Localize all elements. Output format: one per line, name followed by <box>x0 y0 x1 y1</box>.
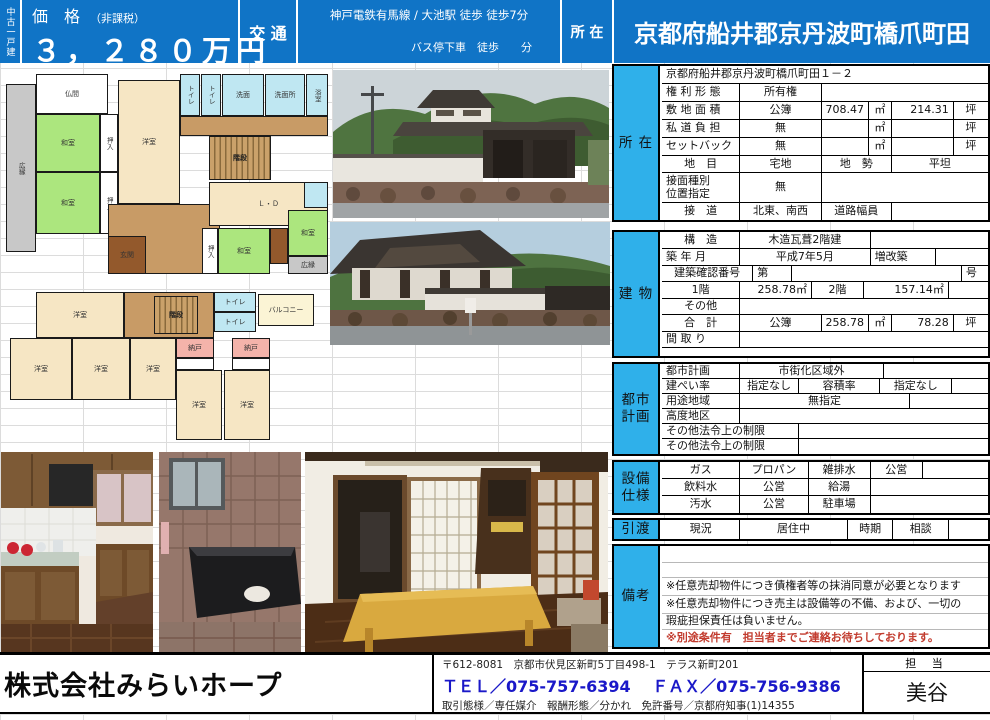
room-浴室: 浴室 <box>306 74 328 116</box>
tatemono-cell-1-3 <box>936 249 988 265</box>
tatemono-row-1: 築 年 月平成7年5月増改築 <box>662 249 988 266</box>
section-label-tatemono: 建 物 <box>614 232 660 356</box>
tatemono-cell-0-1: 木造瓦葺2階建 <box>740 232 870 248</box>
shozai-cell-3-0: 私 道 負 担 <box>662 120 740 137</box>
room-仏間: 仏間 <box>36 74 108 114</box>
hikiwatashi-cell-0-2: 時期 <box>848 520 894 539</box>
room-closet <box>232 358 270 370</box>
section-setsubi: 設備仕様ガスプロパン雑排水公営飲料水公営給湯汚水公営駐車場 <box>612 460 990 515</box>
room-和室: 和室 <box>288 210 328 256</box>
shozai-cell-3-1: 無 <box>740 120 822 137</box>
tatemono-cell-5-1: 公簿 <box>740 315 822 331</box>
setsubi-cell-0-1: プロパン <box>740 462 808 478</box>
transport-line1: 神戸電鉄有馬線 / 大池駅 徒歩 徒歩7分 <box>298 7 560 23</box>
biko-cell-1-0 <box>662 563 988 577</box>
company-tel-fax: ＴＥＬ／075-757-6394 ＦＡＸ／075-756-9386 <box>442 673 862 697</box>
setsubi-row-2: 汚水公営駐車場 <box>662 496 988 513</box>
tatemono-row-5: 合 計公簿258.78㎡78.28坪 <box>662 315 988 332</box>
room-和室: 和室 <box>36 114 100 172</box>
tatemono-cell-4-1 <box>740 299 988 314</box>
tatemono-row-4: その他 <box>662 299 988 315</box>
tatemono-cell-5-2: 258.78 <box>822 315 869 331</box>
room-洋室: 洋室 <box>118 80 180 204</box>
toshikeikaku-cell-1-1: 指定なし <box>740 379 799 393</box>
tatemono-cell-1-2: 増改築 <box>871 249 936 265</box>
toshikeikaku-row-3: 高度地区 <box>662 409 988 424</box>
tatemono-cell-1-0: 築 年 月 <box>662 249 740 265</box>
shozai-row-1: 権 利 形 態所有権 <box>662 84 988 102</box>
shozai-cell-1-0: 権 利 形 態 <box>662 84 740 101</box>
setsubi-cell-1-2: 給湯 <box>809 479 871 495</box>
toshikeikaku-row-1: 建ぺい率指定なし容積率指定なし <box>662 379 988 394</box>
toshikeikaku-cell-3-0: 高度地区 <box>662 409 740 423</box>
room-洋室: 洋室 <box>10 338 72 400</box>
biko-cell-2-0: ※任意売却物件につき債権者等の抹消同意が必要となります <box>662 578 988 595</box>
biko-cell-4-0: 瑕疵担保責任は負いません。 <box>662 614 988 629</box>
room-genkan <box>270 228 288 264</box>
shozai-cell-1-1: 所有権 <box>740 84 822 101</box>
shozai-cell-7-3 <box>892 203 988 220</box>
staff-name: 美谷 <box>864 672 990 712</box>
tatemono-cell-2-1: 第 <box>753 266 792 281</box>
setsubi-cell-0-3: 公営 <box>871 462 923 478</box>
tatemono-cell-5-3: ㎡ <box>869 315 892 331</box>
shozai-cell-5-2: 地 勢 <box>822 156 892 172</box>
tatemono-cell-2-3: 号 <box>962 266 988 281</box>
floorplan-floor-2: 洋室階段トイレトイレバルコニー洋室洋室洋室納戸納戸洋室洋室 <box>8 290 316 442</box>
setsubi-cell-2-1: 公営 <box>740 496 808 513</box>
setsubi-row-1: 飲料水公営給湯 <box>662 479 988 496</box>
shozai-cell-4-1: 無 <box>740 138 822 155</box>
tatemono-cell-0-2 <box>871 232 988 248</box>
shozai-cell-3-4 <box>892 120 954 137</box>
toshikeikaku-cell-1-2: 容積率 <box>799 379 881 393</box>
hikiwatashi-cell-0-1: 居住中 <box>740 520 848 539</box>
toshikeikaku-cell-1-4 <box>952 379 988 393</box>
biko-row-4: 瑕疵担保責任は負いません。 <box>662 614 988 630</box>
tatemono-row-0: 構 造木造瓦葺2階建 <box>662 232 988 249</box>
tatemono-cell-7-0 <box>662 348 988 356</box>
section-label-shozai: 所 在 <box>614 66 660 220</box>
section-label-toshikeikaku: 都市計画 <box>614 364 660 454</box>
toshikeikaku-cell-2-2 <box>910 394 988 408</box>
shozai-cell-2-3: ㎡ <box>869 102 892 119</box>
shozai-cell-2-0: 敷 地 面 積 <box>662 102 740 119</box>
biko-row-2: ※任意売却物件につき債権者等の抹消同意が必要となります <box>662 578 988 596</box>
tatemono-row-6: 間 取 り <box>662 332 988 348</box>
toshikeikaku-row-5: その他法令上の制限 <box>662 439 988 454</box>
room-洋室: 洋室 <box>36 292 124 338</box>
tatemono-cell-3-2: 2階 <box>812 282 864 298</box>
location-label: 所 在 <box>560 0 612 63</box>
tatemono-cell-2-2 <box>792 266 962 281</box>
shozai-cell-4-2 <box>822 138 869 155</box>
photo-bathroom <box>159 452 301 672</box>
shozai-cell-3-3: ㎡ <box>869 120 892 137</box>
setsubi-cell-0-2: 雑排水 <box>809 462 871 478</box>
shozai-row-4: セットバック無㎡坪 <box>662 138 988 156</box>
tatemono-cell-3-4 <box>949 282 988 298</box>
toshikeikaku-row-4: その他法令上の制限 <box>662 424 988 439</box>
room-洋室: 洋室 <box>72 338 130 400</box>
price-label: 価 格 <box>32 3 80 27</box>
room-広縁: 広縁 <box>288 256 328 274</box>
shozai-cell-5-3: 平坦 <box>892 156 988 172</box>
property-type-vertical-label: 中古一戸建 <box>0 0 20 63</box>
room-hall <box>180 116 328 136</box>
shozai-cell-4-0: セットバック <box>662 138 740 155</box>
shozai-cell-2-4: 214.31 <box>892 102 954 119</box>
footer-band: 株式会社みらいホープ 〒612-8081 京都市伏見区新町5丁目498-1 テラ… <box>0 652 990 714</box>
company-name: 株式会社みらいホープ <box>0 655 432 712</box>
tatemono-row-7 <box>662 348 988 356</box>
shozai-cell-2-1: 公簿 <box>740 102 822 119</box>
room-wet <box>304 182 328 208</box>
room-押入: 押入 <box>100 114 118 172</box>
tatemono-cell-0-0: 構 造 <box>662 232 740 248</box>
toshikeikaku-cell-3-1 <box>740 409 988 423</box>
toshikeikaku-cell-5-1 <box>799 439 988 454</box>
room-玄関: 玄関 <box>108 236 146 274</box>
toshikeikaku-cell-0-2 <box>884 364 988 378</box>
property-flyer-page: 中古一戸建 価 格 （非課税） ３，２８０万円 交 通 神戸電鉄有馬線 / 大池… <box>0 0 990 720</box>
tatemono-cell-3-0: 1階 <box>662 282 740 298</box>
setsubi-cell-2-2: 駐車場 <box>809 496 871 513</box>
staff-label: 担 当 <box>864 655 990 672</box>
tatemono-row-3: 1階258.78㎡2階157.14㎡ <box>662 282 988 299</box>
room-広縁: 広縁 <box>6 84 36 252</box>
floorplan-floor-1: 広縁仏間和室和室押入押入洋室玄関トイレトイレ洗面洗面所浴室階段Ｌ・Ｄ押入和室和室… <box>4 70 330 282</box>
room-納戸: 納戸 <box>232 338 270 358</box>
room-バルコニー: バルコニー <box>258 294 314 326</box>
toshikeikaku-cell-4-1 <box>799 424 988 438</box>
tatemono-cell-1-1: 平成7年5月 <box>740 249 870 265</box>
section-hikiwatashi: 引渡現況居住中時期相談 <box>612 518 990 541</box>
setsubi-row-0: ガスプロパン雑排水公営 <box>662 462 988 479</box>
photo-exterior-front <box>333 70 609 218</box>
tatemono-cell-4-0: その他 <box>662 299 740 314</box>
shozai-cell-5-0: 地 目 <box>662 156 740 172</box>
shozai-cell-4-3: ㎡ <box>869 138 892 155</box>
toshikeikaku-cell-2-0: 用途地域 <box>662 394 740 408</box>
setsubi-cell-1-0: 飲料水 <box>662 479 740 495</box>
price-tax-note: （非課税） <box>90 10 145 26</box>
shozai-cell-6-2 <box>822 173 988 202</box>
room-階段: 階段 <box>209 136 271 180</box>
section-toshikeikaku: 都市計画都市計画市街化区域外建ぺい率指定なし容積率指定なし用途地域無指定高度地区… <box>612 362 990 456</box>
shozai-cell-3-2 <box>822 120 869 137</box>
tatemono-cell-6-1 <box>740 332 988 347</box>
toshikeikaku-cell-1-0: 建ぺい率 <box>662 379 740 393</box>
section-label-setsubi: 設備仕様 <box>614 462 660 513</box>
company-address: 〒612-8081 京都市伏見区新町5丁目498-1 テラス新町201 <box>442 657 862 672</box>
toshikeikaku-cell-0-0: 都市計画 <box>662 364 740 378</box>
tatemono-row-2: 建築確認番号第号 <box>662 266 988 282</box>
setsubi-cell-0-0: ガス <box>662 462 740 478</box>
company-license: 取引態様／専任媒介 報酬形態／分かれ 免許番号／京都府知事(1)14355 <box>442 698 862 713</box>
hikiwatashi-cell-0-4 <box>949 520 988 539</box>
room-納戸: 納戸 <box>176 338 214 358</box>
section-biko: 備考※任意売却物件につき債権者等の抹消同意が必要となります※任意売却物件につき売… <box>612 544 990 649</box>
section-label-hikiwatashi: 引渡 <box>614 520 660 539</box>
shozai-cell-2-5: 坪 <box>954 102 988 119</box>
hikiwatashi-cell-0-0: 現況 <box>662 520 740 539</box>
shozai-row-3: 私 道 負 担無㎡坪 <box>662 120 988 138</box>
staff-box: 担 当 美谷 <box>862 655 990 712</box>
transport-label: 交 通 <box>238 0 296 63</box>
toshikeikaku-row-0: 都市計画市街化区域外 <box>662 364 988 379</box>
price-block: 価 格 （非課税） ３，２８０万円 <box>20 0 238 63</box>
toshikeikaku-cell-4-0: その他法令上の制限 <box>662 424 799 438</box>
biko-row-5: ※別途条件有 担当者までご連絡お待ちしております。 <box>662 630 988 647</box>
shozai-cell-4-5: 坪 <box>954 138 988 155</box>
room-洋室: 洋室 <box>130 338 176 400</box>
tatemono-cell-6-0: 間 取 り <box>662 332 740 347</box>
shozai-row-0: 京都府船井郡京丹波町橋爪町田１－２ <box>662 66 988 84</box>
price-value: ３，２８０万円 <box>32 28 232 70</box>
shozai-cell-4-4 <box>892 138 954 155</box>
room-和室: 和室 <box>218 228 270 274</box>
room-洗面所: 洗面所 <box>265 74 305 116</box>
room-トイレ: トイレ <box>214 292 256 312</box>
shozai-cell-3-5: 坪 <box>954 120 988 137</box>
room-トイレ: トイレ <box>214 312 256 332</box>
biko-cell-5-0: ※別途条件有 担当者までご連絡お待ちしております。 <box>662 630 988 647</box>
tatemono-cell-5-5: 坪 <box>954 315 988 331</box>
biko-cell-3-0: ※任意売却物件につき売主は設備等の不備、および、一切の <box>662 596 988 613</box>
shozai-cell-6-1: 無 <box>740 173 822 202</box>
room-洋室: 洋室 <box>176 370 222 440</box>
room-押入: 押入 <box>202 228 218 274</box>
shozai-cell-7-1: 北東、南西 <box>740 203 822 220</box>
tatemono-cell-2-0: 建築確認番号 <box>662 266 753 281</box>
toshikeikaku-cell-5-0: その他法令上の制限 <box>662 439 799 454</box>
biko-row-0 <box>662 546 988 563</box>
room-洗面: 洗面 <box>222 74 264 116</box>
section-shozai: 所 在京都府船井郡京丹波町橋爪町田１－２権 利 形 態所有権敷 地 面 積公簿7… <box>612 64 990 222</box>
transport-block: 神戸電鉄有馬線 / 大池駅 徒歩 徒歩7分 バス停下車 徒歩 分 <box>296 0 560 63</box>
room-closet <box>176 358 214 370</box>
shozai-row-7: 接 道北東、南西道路幅員 <box>662 203 988 220</box>
setsubi-cell-1-1: 公営 <box>740 479 808 495</box>
shozai-cell-0-0: 京都府船井郡京丹波町橋爪町田１－２ <box>662 66 988 83</box>
tatemono-cell-5-0: 合 計 <box>662 315 740 331</box>
hikiwatashi-cell-0-3: 相談 <box>893 520 948 539</box>
shozai-cell-5-1: 宅地 <box>740 156 822 172</box>
setsubi-cell-0-4 <box>923 462 988 478</box>
shozai-row-2: 敷 地 面 積公簿708.47㎡214.31坪 <box>662 102 988 120</box>
setsubi-cell-2-3 <box>871 496 988 513</box>
transport-line2: バス停下車 徒歩 分 <box>298 39 560 55</box>
shozai-cell-7-0: 接 道 <box>662 203 740 220</box>
biko-row-3: ※任意売却物件につき売主は設備等の不備、および、一切の <box>662 596 988 614</box>
room-和室: 和室 <box>36 172 100 234</box>
biko-cell-0-0 <box>662 546 988 562</box>
shozai-row-5: 地 目宅地地 勢平坦 <box>662 156 988 173</box>
info-tables-area: 所 在京都府船井郡京丹波町橋爪町田１－２権 利 形 態所有権敷 地 面 積公簿7… <box>612 0 990 720</box>
tatemono-cell-5-4: 78.28 <box>892 315 954 331</box>
section-tatemono: 建 物構 造木造瓦葺2階建築 年 月平成7年5月増改築建築確認番号第号1階258… <box>612 230 990 358</box>
room-階段: 階段 <box>154 296 198 334</box>
tatemono-cell-3-3: 157.14㎡ <box>864 282 949 298</box>
setsubi-cell-2-0: 汚水 <box>662 496 740 513</box>
toshikeikaku-row-2: 用途地域無指定 <box>662 394 988 409</box>
room-トイレ: トイレ <box>180 74 200 116</box>
room-トイレ: トイレ <box>201 74 221 116</box>
photo-kitchen <box>1 452 153 675</box>
photo-exterior-side <box>330 222 610 345</box>
company-contact-block: 〒612-8081 京都市伏見区新町5丁目498-1 テラス新町201 ＴＥＬ／… <box>432 655 862 712</box>
shozai-cell-1-2 <box>822 84 988 101</box>
hikiwatashi-row-0: 現況居住中時期相談 <box>662 520 988 539</box>
biko-row-1 <box>662 563 988 578</box>
section-label-biko: 備考 <box>614 546 660 647</box>
toshikeikaku-cell-2-1: 無指定 <box>740 394 910 408</box>
toshikeikaku-cell-1-3: 指定なし <box>880 379 952 393</box>
toshikeikaku-cell-0-1: 市街化区域外 <box>740 364 883 378</box>
setsubi-cell-1-3 <box>871 479 988 495</box>
tatemono-cell-3-1: 258.78㎡ <box>740 282 812 298</box>
room-洋室: 洋室 <box>224 370 270 440</box>
shozai-row-6: 接面種別 位置指定無 <box>662 173 988 203</box>
photo-dining-room <box>305 452 608 660</box>
shozai-cell-7-2: 道路幅員 <box>822 203 892 220</box>
shozai-cell-6-0: 接面種別 位置指定 <box>662 173 740 202</box>
shozai-cell-2-2: 708.47 <box>822 102 869 119</box>
